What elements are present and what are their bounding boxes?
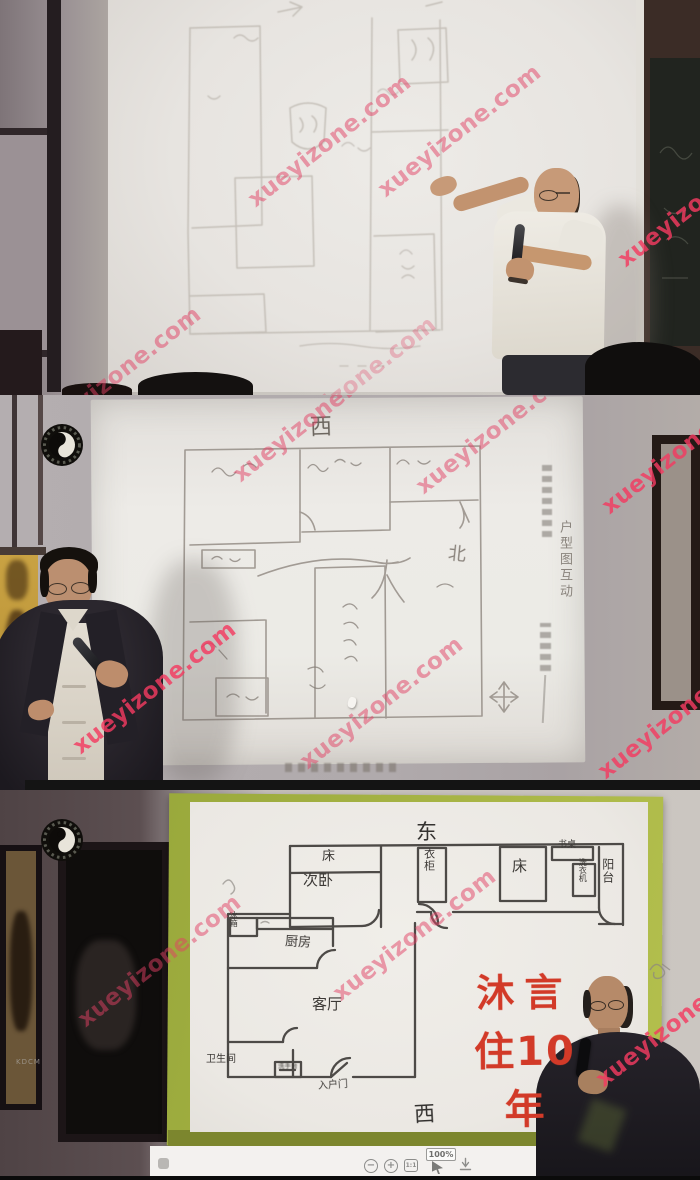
scroll-figure	[6, 560, 28, 600]
frame-bottom: KDCM	[0, 790, 700, 1180]
compass-label-west: 西	[310, 415, 333, 441]
handwritten-note-column	[540, 623, 551, 671]
frog-button	[62, 721, 86, 724]
blackboard	[650, 58, 700, 346]
viewer-toolbar	[150, 1146, 562, 1176]
frame-top: xueyizone.com xueyizone.com xueyizone.co…	[0, 0, 700, 395]
room-label-bathroom: 卫生间	[206, 1054, 236, 1066]
wall-picture-frame	[652, 435, 700, 710]
zoom-in-button[interactable]: +	[384, 1159, 398, 1173]
room-label-bed-right: 床	[512, 858, 527, 875]
room-label-living-room: 客厅	[312, 996, 342, 1013]
frog-button	[62, 685, 86, 688]
app-icon[interactable]	[158, 1158, 169, 1169]
wall-bar	[0, 547, 46, 555]
room-label-washing-machine: 洗衣机	[578, 858, 587, 888]
zoom-level-badge: 100%	[426, 1148, 456, 1161]
presenter-side-hair	[40, 567, 49, 597]
room-label-kitchen: 厨房	[285, 935, 312, 951]
glasses-icon	[539, 190, 558, 201]
audience-head	[0, 330, 42, 395]
download-button[interactable]	[458, 1157, 473, 1172]
room-label-desk: 书桌	[558, 840, 576, 850]
room-label-washstand: 洗手台	[278, 1063, 298, 1070]
glasses-icon	[71, 582, 90, 594]
compass-label-east: 东	[416, 820, 437, 844]
frame-bottom-edge	[0, 1176, 700, 1180]
wall-doodle	[646, 956, 674, 982]
frame-figure	[10, 911, 32, 1031]
taiji-icon	[40, 423, 84, 467]
chalk-sketch	[650, 58, 700, 346]
frog-button	[62, 757, 86, 760]
room-label-entry-door: 入户门	[318, 1079, 349, 1093]
room-label-balcony: 阳台	[600, 858, 614, 896]
red-annotation-line1: 沐言	[454, 961, 595, 1017]
wall-strip	[38, 395, 43, 545]
presenter-shadow	[150, 560, 238, 785]
red-annotation-line2: 住10年	[455, 1018, 596, 1135]
zoom-out-button[interactable]: −	[364, 1159, 378, 1173]
room-label-secondary-bedroom: 次卧	[303, 872, 333, 889]
wall-picture-frame	[58, 842, 170, 1142]
audience-head	[62, 383, 132, 395]
camera-watermark: KDCM	[16, 1058, 41, 1066]
audience-head	[585, 342, 700, 395]
handwritten-note-column	[542, 465, 552, 537]
room-label-bed-left: 床	[322, 850, 335, 865]
room-label-wardrobe: 衣柜	[422, 848, 435, 890]
glasses-icon	[590, 1001, 606, 1011]
frame-middle: 西 北 户型图互动	[0, 395, 700, 790]
slide-side-caption: 户型图互动	[556, 520, 571, 615]
wall-column-strip	[47, 0, 61, 392]
compass-label-west: 西	[413, 1101, 435, 1126]
room-label-fridge: 冰箱	[229, 911, 238, 931]
glasses-icon	[608, 1000, 624, 1010]
wall-strip	[12, 395, 17, 555]
video-frames-collage: xueyizone.com xueyizone.com xueyizone.co…	[0, 0, 700, 1180]
wall-picture-frame	[0, 845, 42, 1110]
slide-caption-scribble	[285, 763, 397, 772]
taiji-icon	[40, 818, 84, 862]
audience-head	[138, 372, 253, 395]
glasses-temple	[556, 192, 570, 194]
glasses-icon	[48, 583, 67, 595]
compass-label-north: 北	[447, 544, 467, 566]
frame-figure	[76, 940, 136, 1050]
floor-edge	[25, 780, 700, 790]
red-annotation: 沐言 住10年	[454, 961, 596, 1135]
actual-size-button[interactable]: 1:1	[404, 1159, 418, 1172]
